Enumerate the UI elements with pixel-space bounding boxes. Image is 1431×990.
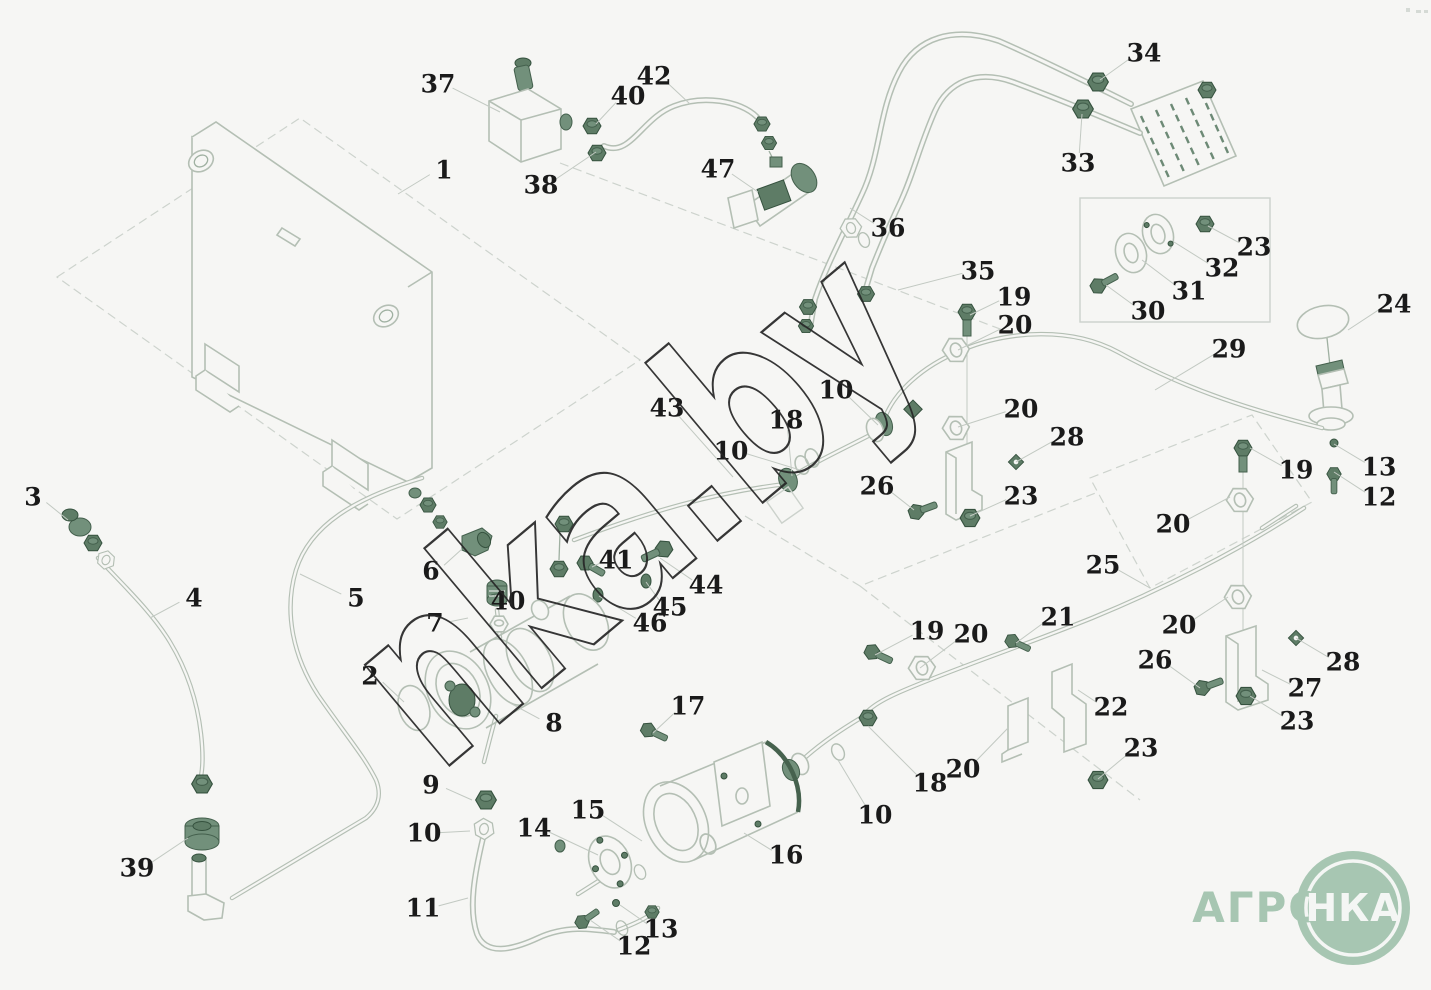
part-label-12: 12	[617, 932, 652, 961]
part-label-12: 12	[1362, 483, 1397, 512]
part-label-27: 27	[1288, 674, 1323, 703]
part-label-10: 10	[858, 801, 893, 830]
part-label-34: 34	[1127, 39, 1162, 68]
part-label-10: 10	[407, 819, 442, 848]
part-label-32: 32	[1205, 254, 1240, 283]
nut-39	[185, 818, 219, 850]
part-label-37: 37	[421, 70, 456, 99]
part-label-39: 39	[120, 854, 155, 883]
part-label-14: 14	[517, 814, 552, 843]
part-label-4: 4	[185, 584, 202, 613]
part-label-20: 20	[954, 620, 989, 649]
part-label-42: 42	[637, 62, 672, 91]
part-label-20: 20	[1156, 510, 1191, 539]
part-label-24: 24	[1377, 290, 1412, 319]
part-label-20: 20	[998, 311, 1033, 340]
part-label-17: 17	[671, 692, 706, 721]
part-label-1: 1	[435, 156, 452, 185]
part-label-23: 23	[1124, 734, 1159, 763]
part-label-25: 25	[1086, 551, 1121, 580]
part-label-19: 19	[997, 283, 1032, 312]
part-label-20: 20	[1162, 611, 1197, 640]
part-label-38: 38	[524, 171, 559, 200]
part-label-29: 29	[1212, 335, 1247, 364]
part-label-3: 3	[24, 483, 41, 512]
part-label-22: 22	[1094, 693, 1129, 722]
part-label-15: 15	[571, 796, 606, 825]
part-label-16: 16	[769, 841, 804, 870]
part-label-19: 19	[910, 617, 945, 646]
part-label-35: 35	[961, 257, 996, 286]
part-label-23: 23	[1237, 233, 1272, 262]
part-label-20: 20	[1004, 395, 1039, 424]
diagram-canvas: 3740421384734333635233231302924192010181…	[0, 0, 1431, 990]
part-label-36: 36	[871, 214, 906, 243]
part-label-13: 13	[1362, 453, 1397, 482]
part-label-23: 23	[1280, 707, 1315, 736]
part-label-19: 19	[1279, 456, 1314, 485]
part-label-30: 30	[1131, 297, 1166, 326]
part-label-28: 28	[1050, 423, 1085, 452]
part-label-31: 31	[1172, 277, 1207, 306]
part-label-47: 47	[701, 155, 736, 184]
part-label-28: 28	[1326, 648, 1361, 677]
part-label-21: 21	[1041, 603, 1076, 632]
part-label-11: 11	[406, 894, 441, 923]
part-label-23: 23	[1004, 482, 1039, 511]
logo-circle-text: НКА	[1305, 886, 1400, 930]
part-label-26: 26	[1138, 646, 1173, 675]
part-label-20: 20	[946, 755, 981, 784]
part-label-18: 18	[913, 769, 948, 798]
parts-diagram-page: 3740421384734333635233231302924192010181…	[0, 0, 1431, 990]
part-label-33: 33	[1061, 149, 1096, 178]
